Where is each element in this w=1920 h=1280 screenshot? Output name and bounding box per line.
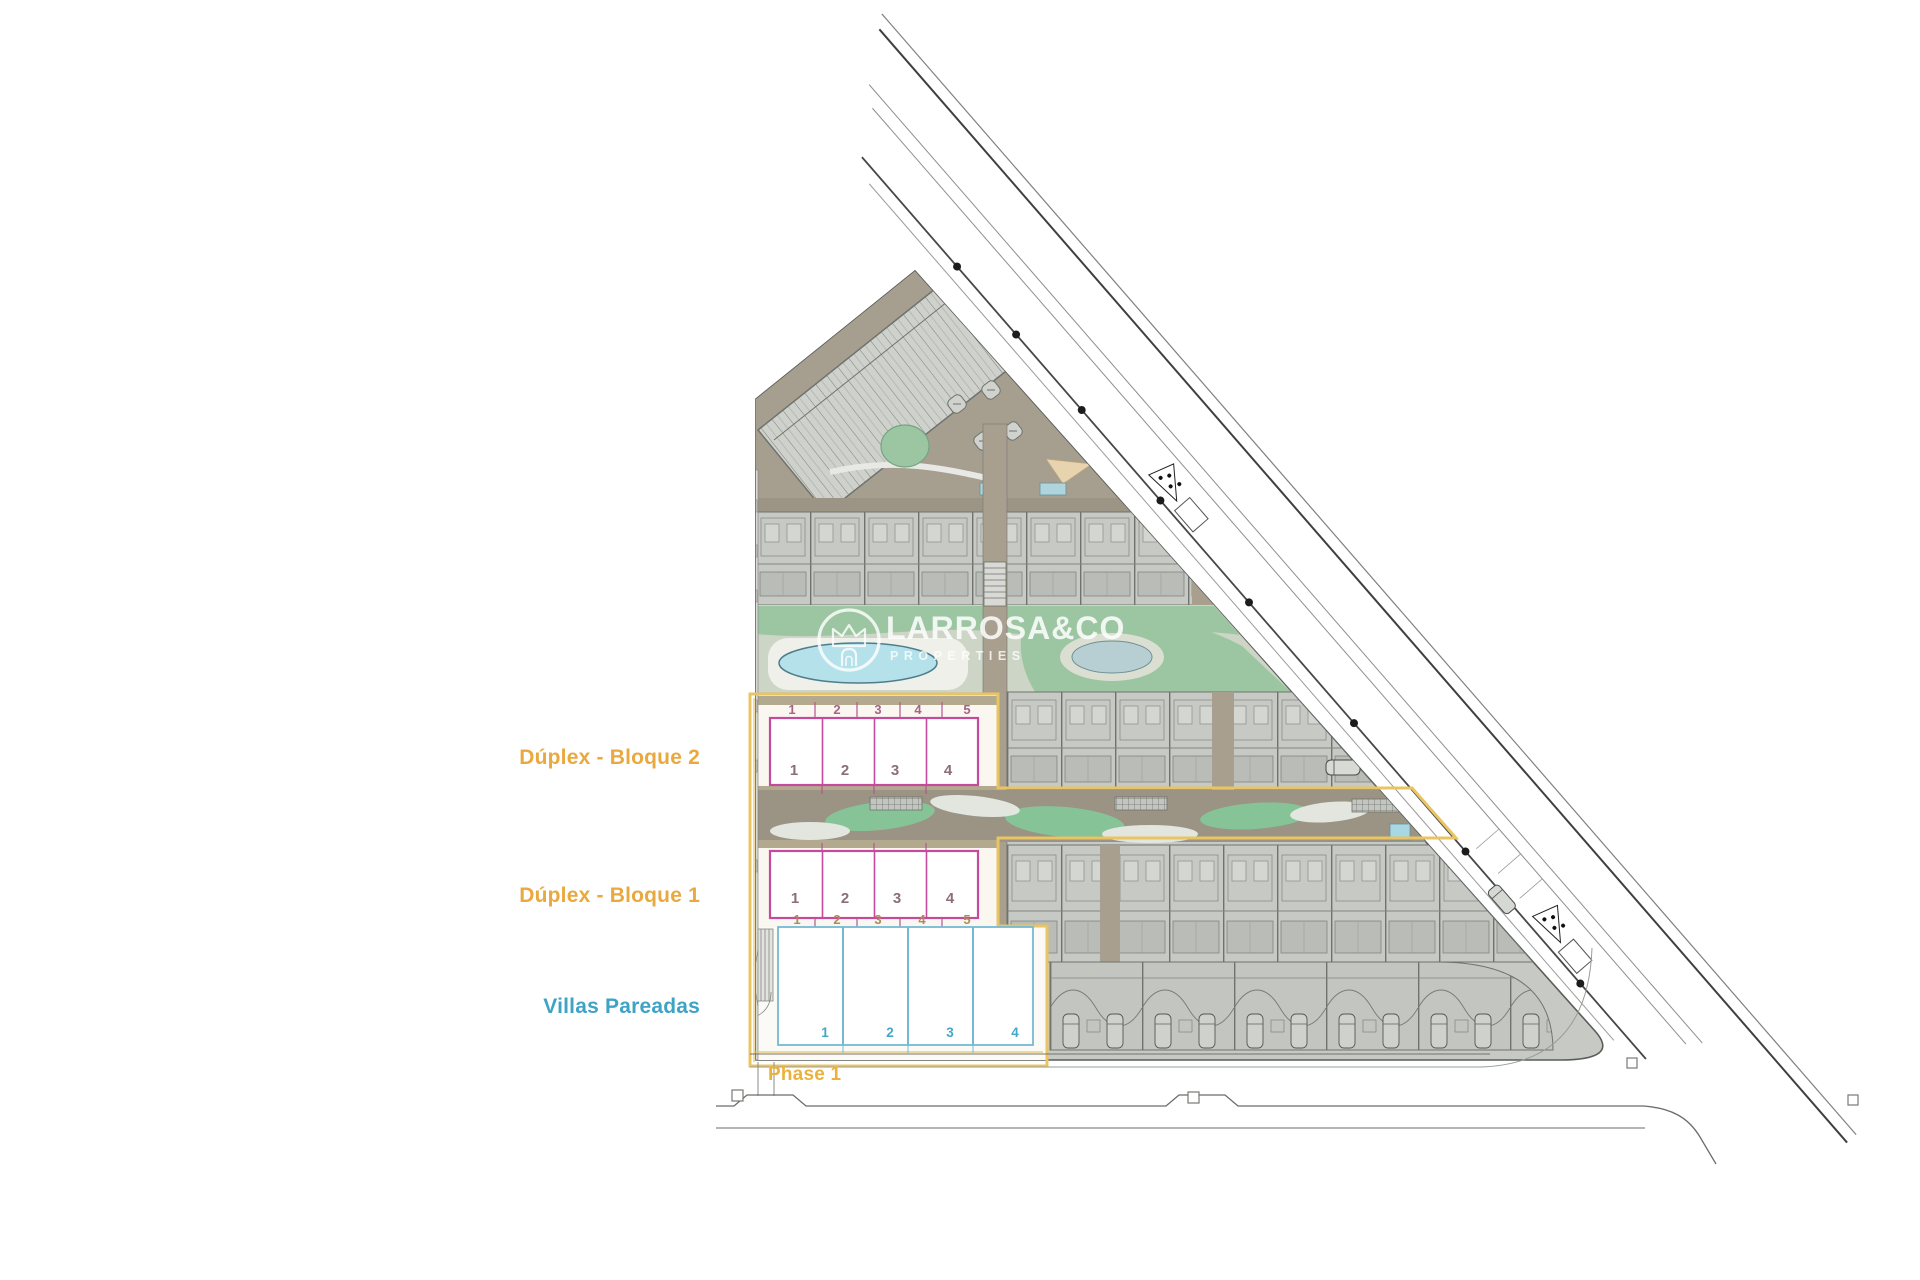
villa-unit-number: 3 (946, 1026, 954, 1040)
label-duplex-block-1: Dúplex - Bloque 1 (450, 884, 700, 908)
duplex2-plot-number: 3 (874, 703, 881, 716)
villas-block (778, 927, 1033, 1053)
label-phase-1: Phase 1 (768, 1064, 841, 1086)
bottom-road (716, 1095, 1716, 1164)
stairs (984, 562, 1006, 606)
duplex2-unit-number: 1 (790, 763, 798, 778)
duplex2-plot-number: 1 (788, 703, 795, 716)
duplex1-unit-number: 2 (841, 891, 849, 906)
duplex2-plot-number: 5 (963, 703, 970, 716)
duplex2-unit-number: 3 (891, 763, 899, 778)
villa-unit-number: 4 (1011, 1026, 1019, 1040)
watermark-tagline: PROPERTIES (890, 649, 1026, 663)
parking-ticks (1476, 829, 1542, 898)
duplex1-unit-number: 3 (893, 891, 901, 906)
duplex1-plot-number: 4 (918, 913, 925, 926)
duplex2-plot-number: 4 (914, 703, 921, 716)
duplex1-unit-number: 1 (791, 891, 799, 906)
screenshot-root: LARROSA&CO PROPERTIES Dúplex - Bloque 2 … (0, 0, 1920, 1280)
duplex1-plot-number: 1 (793, 913, 800, 926)
duplex1-plot-number: 5 (963, 913, 970, 926)
villa-unit-number: 2 (886, 1026, 894, 1040)
duplex1-unit-number: 4 (946, 891, 954, 906)
watermark-brand: LARROSA&CO (886, 610, 1125, 647)
label-villas-pareadas: Villas Pareadas (450, 995, 700, 1019)
duplex1-plot-number: 3 (874, 913, 881, 926)
label-duplex-block-2: Dúplex - Bloque 2 (450, 746, 700, 770)
apartment-row-lower (1007, 845, 1533, 962)
terraced-houses-row (1050, 962, 1553, 1050)
courtyard-green (881, 425, 929, 467)
duplex2-unit-number: 2 (841, 763, 849, 778)
duplex2-plot-number: 2 (833, 703, 840, 716)
duplex2-unit-number: 4 (944, 763, 952, 778)
duplex1-plot-number: 2 (833, 913, 840, 926)
villa-unit-number: 1 (821, 1026, 829, 1040)
